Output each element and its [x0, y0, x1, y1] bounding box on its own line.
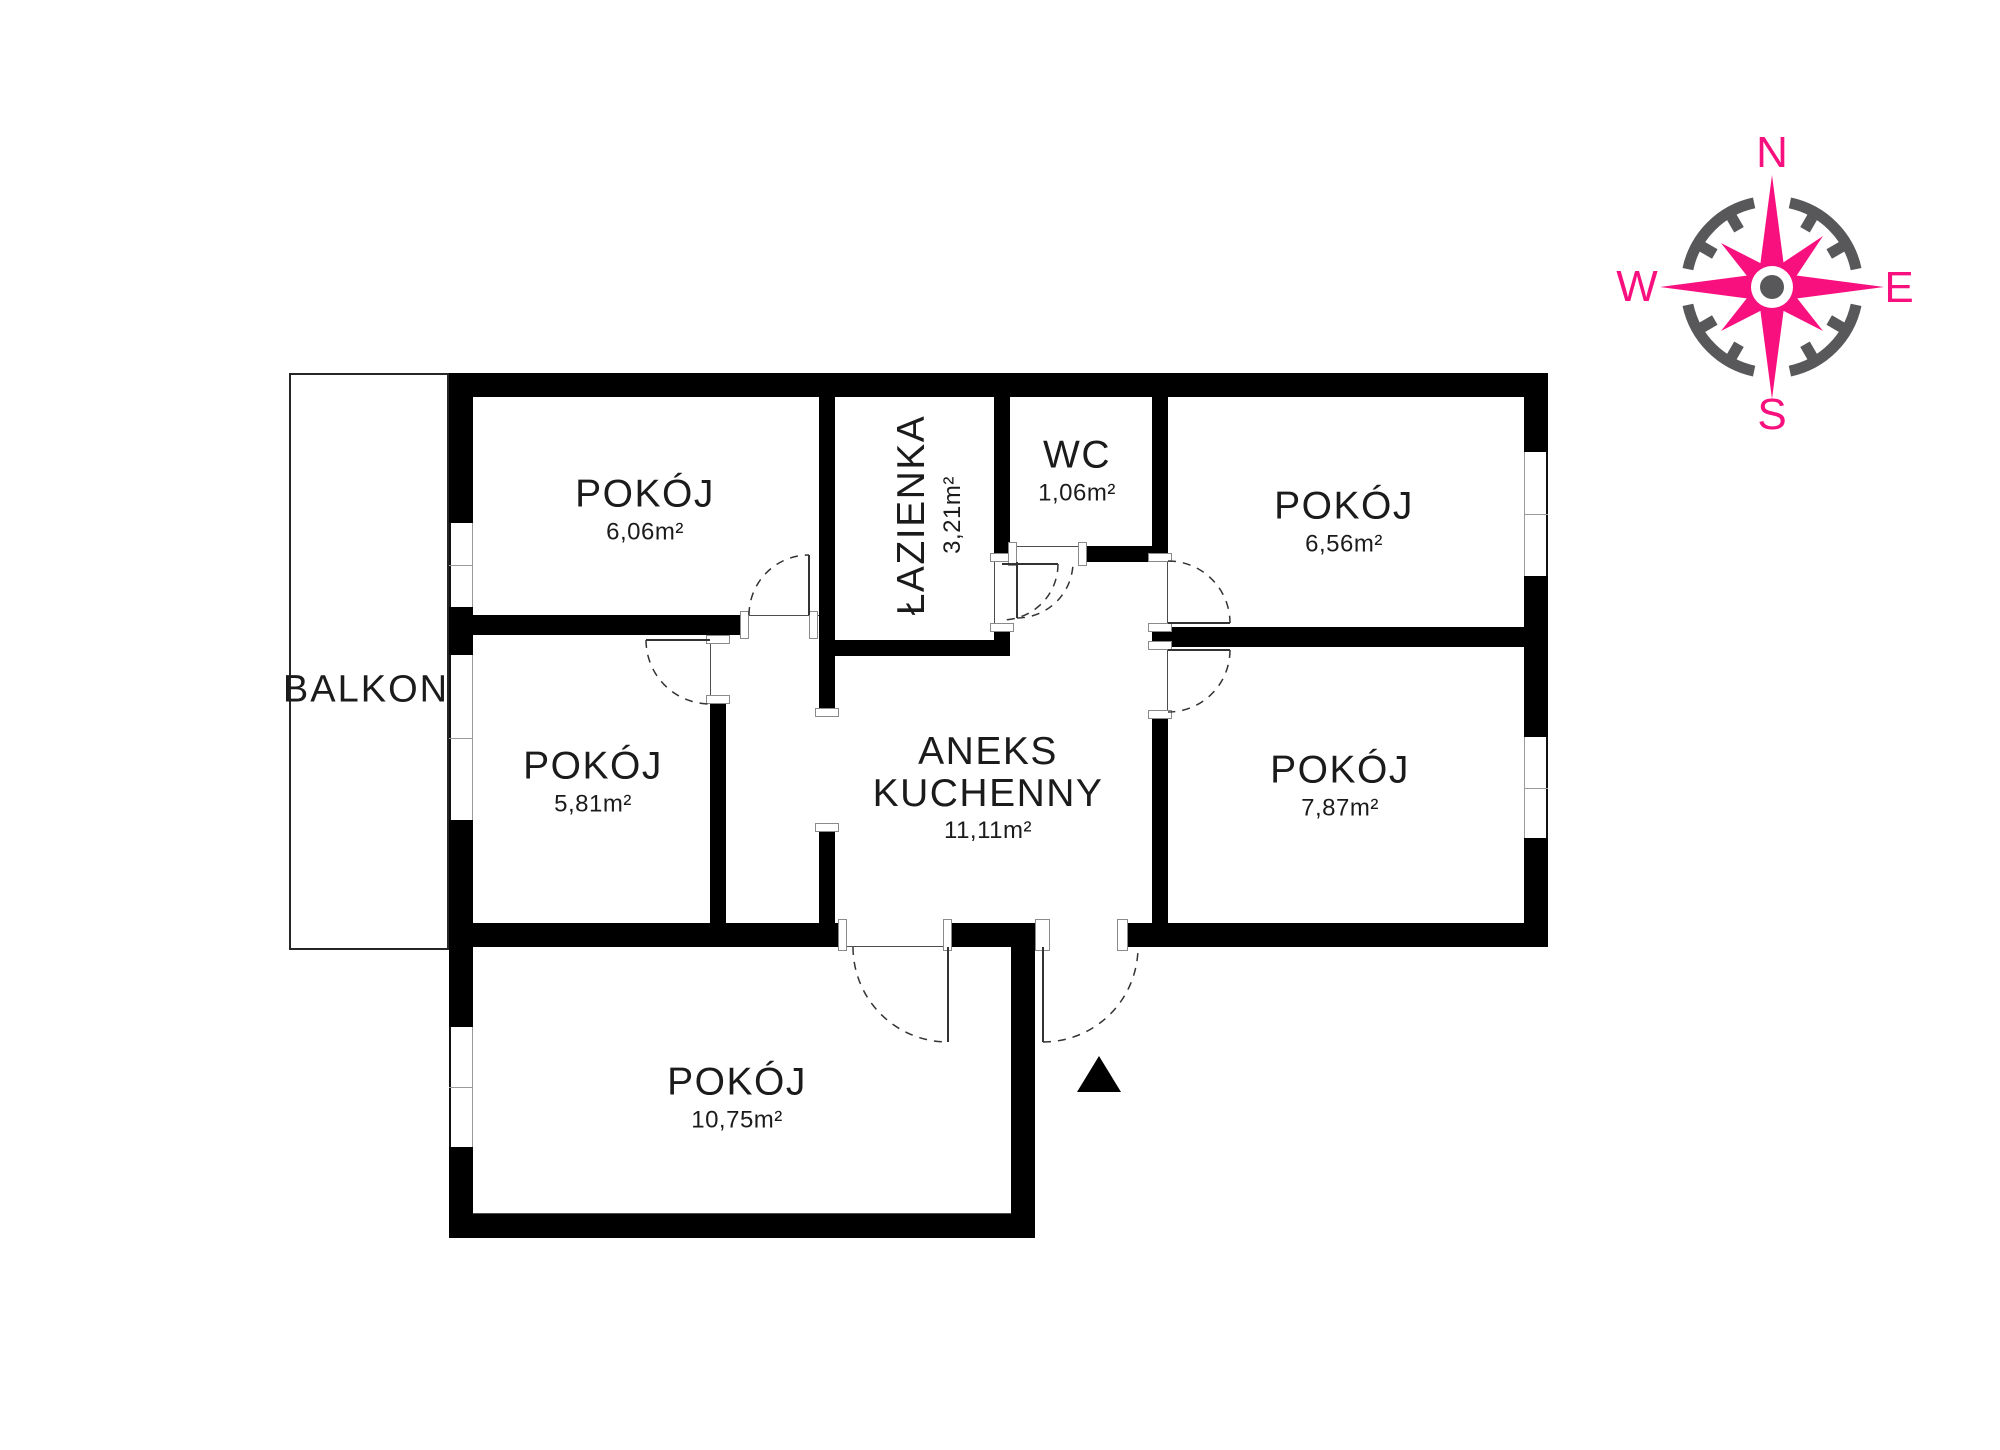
wall-segment	[1168, 627, 1524, 647]
compass-west-label: W	[1616, 262, 1658, 311]
room-label-pokoj-656: POKÓJ 6,56m²	[1274, 486, 1414, 559]
wall-segment	[1152, 397, 1168, 562]
wall-segment	[449, 373, 1548, 397]
door-jamb	[815, 708, 839, 717]
wall-segment	[473, 615, 740, 635]
wall-segment	[994, 397, 1010, 562]
wall-segment	[819, 397, 835, 656]
compass-rose: N E S W	[1600, 105, 1950, 450]
door-jamb	[1148, 710, 1172, 719]
window	[449, 1027, 473, 1147]
door-jamb	[706, 635, 730, 644]
door-jamb	[1148, 553, 1172, 562]
compass-north-label: N	[1756, 128, 1788, 177]
room-name: POKÓJ	[575, 474, 715, 516]
door-swing-arc	[1017, 562, 1073, 618]
wall-segment	[473, 923, 838, 947]
wall-segment	[819, 640, 1010, 656]
room-name: POKÓJ	[1270, 750, 1410, 792]
door-swing-arc	[1043, 947, 1138, 1042]
door-jamb	[809, 611, 818, 639]
balcony-label: BALKON	[283, 669, 449, 712]
door-jamb	[1148, 641, 1172, 650]
wall-segment	[1011, 947, 1035, 1238]
room-label-lazienka: ŁAZIENKA 3,21m²	[891, 415, 967, 616]
room-area: 3,21m²	[939, 476, 967, 554]
wall-segment	[1152, 710, 1168, 923]
compass-east-label: E	[1884, 263, 1913, 312]
door-jamb	[838, 919, 847, 951]
door-jamb	[1148, 623, 1172, 632]
room-label-pokoj-787: POKÓJ 7,87m²	[1270, 750, 1410, 823]
door-jamb	[943, 919, 952, 951]
room-area: 6,56m²	[1305, 530, 1383, 558]
door-jamb	[706, 695, 730, 704]
door-jamb	[990, 623, 1014, 632]
room-label-pokoj-1075: POKÓJ 10,75m²	[667, 1062, 807, 1135]
wall-segment	[710, 704, 726, 923]
window-mid-line	[449, 738, 473, 739]
room-label-wc: WC 1,06m²	[1038, 435, 1116, 508]
room-area: 10,75m²	[691, 1106, 783, 1134]
room-name: POKÓJ	[1274, 486, 1414, 528]
compass-south-label: S	[1757, 390, 1786, 439]
room-area: 6,06m²	[606, 518, 684, 546]
room-label-pokoj-581: POKÓJ 5,81m²	[523, 746, 663, 819]
room-name: ŁAZIENKA	[891, 415, 933, 616]
wall-segment	[819, 823, 835, 923]
door-jamb	[1035, 919, 1050, 951]
window-mid-line	[449, 565, 473, 566]
compass-hub-dot	[1760, 275, 1784, 299]
room-area: 7,87m²	[1301, 794, 1379, 822]
room-name: POKÓJ	[523, 746, 663, 788]
wall-segment	[449, 1214, 1035, 1238]
window	[1524, 452, 1548, 576]
room-area: 1,06m²	[1038, 479, 1116, 507]
door-swing-arc	[1002, 564, 1058, 620]
room-area: 11,11m²	[944, 817, 1032, 845]
room-name: ANEKS KUCHENNY	[843, 731, 1133, 814]
window	[449, 523, 473, 607]
door-jamb	[1078, 542, 1087, 566]
room-name: WC	[1043, 435, 1111, 477]
floor-plan: BALKON POKÓJ 6,06m² ŁAZIENKA 3,21m² WC 1…	[0, 0, 2000, 1450]
window-mid-line	[1524, 788, 1548, 789]
window-mid-line	[1524, 514, 1548, 515]
room-area: 5,81m²	[554, 790, 632, 818]
balcony-outline	[289, 373, 449, 950]
room-label-aneks-kuchenny: ANEKS KUCHENNY 11,11m²	[843, 731, 1133, 845]
window	[1524, 737, 1548, 838]
room-name: POKÓJ	[667, 1062, 807, 1104]
wall-segment	[1128, 923, 1548, 947]
door-jamb	[740, 611, 749, 639]
door-jamb	[1117, 919, 1128, 951]
door-jamb	[1008, 542, 1017, 566]
wall-segment	[952, 923, 1035, 947]
entrance-marker-icon	[1077, 1056, 1121, 1092]
window-mid-line	[449, 1087, 473, 1088]
window	[449, 655, 473, 820]
door-jamb	[815, 823, 839, 832]
room-label-pokoj-606: POKÓJ 6,06m²	[575, 474, 715, 547]
